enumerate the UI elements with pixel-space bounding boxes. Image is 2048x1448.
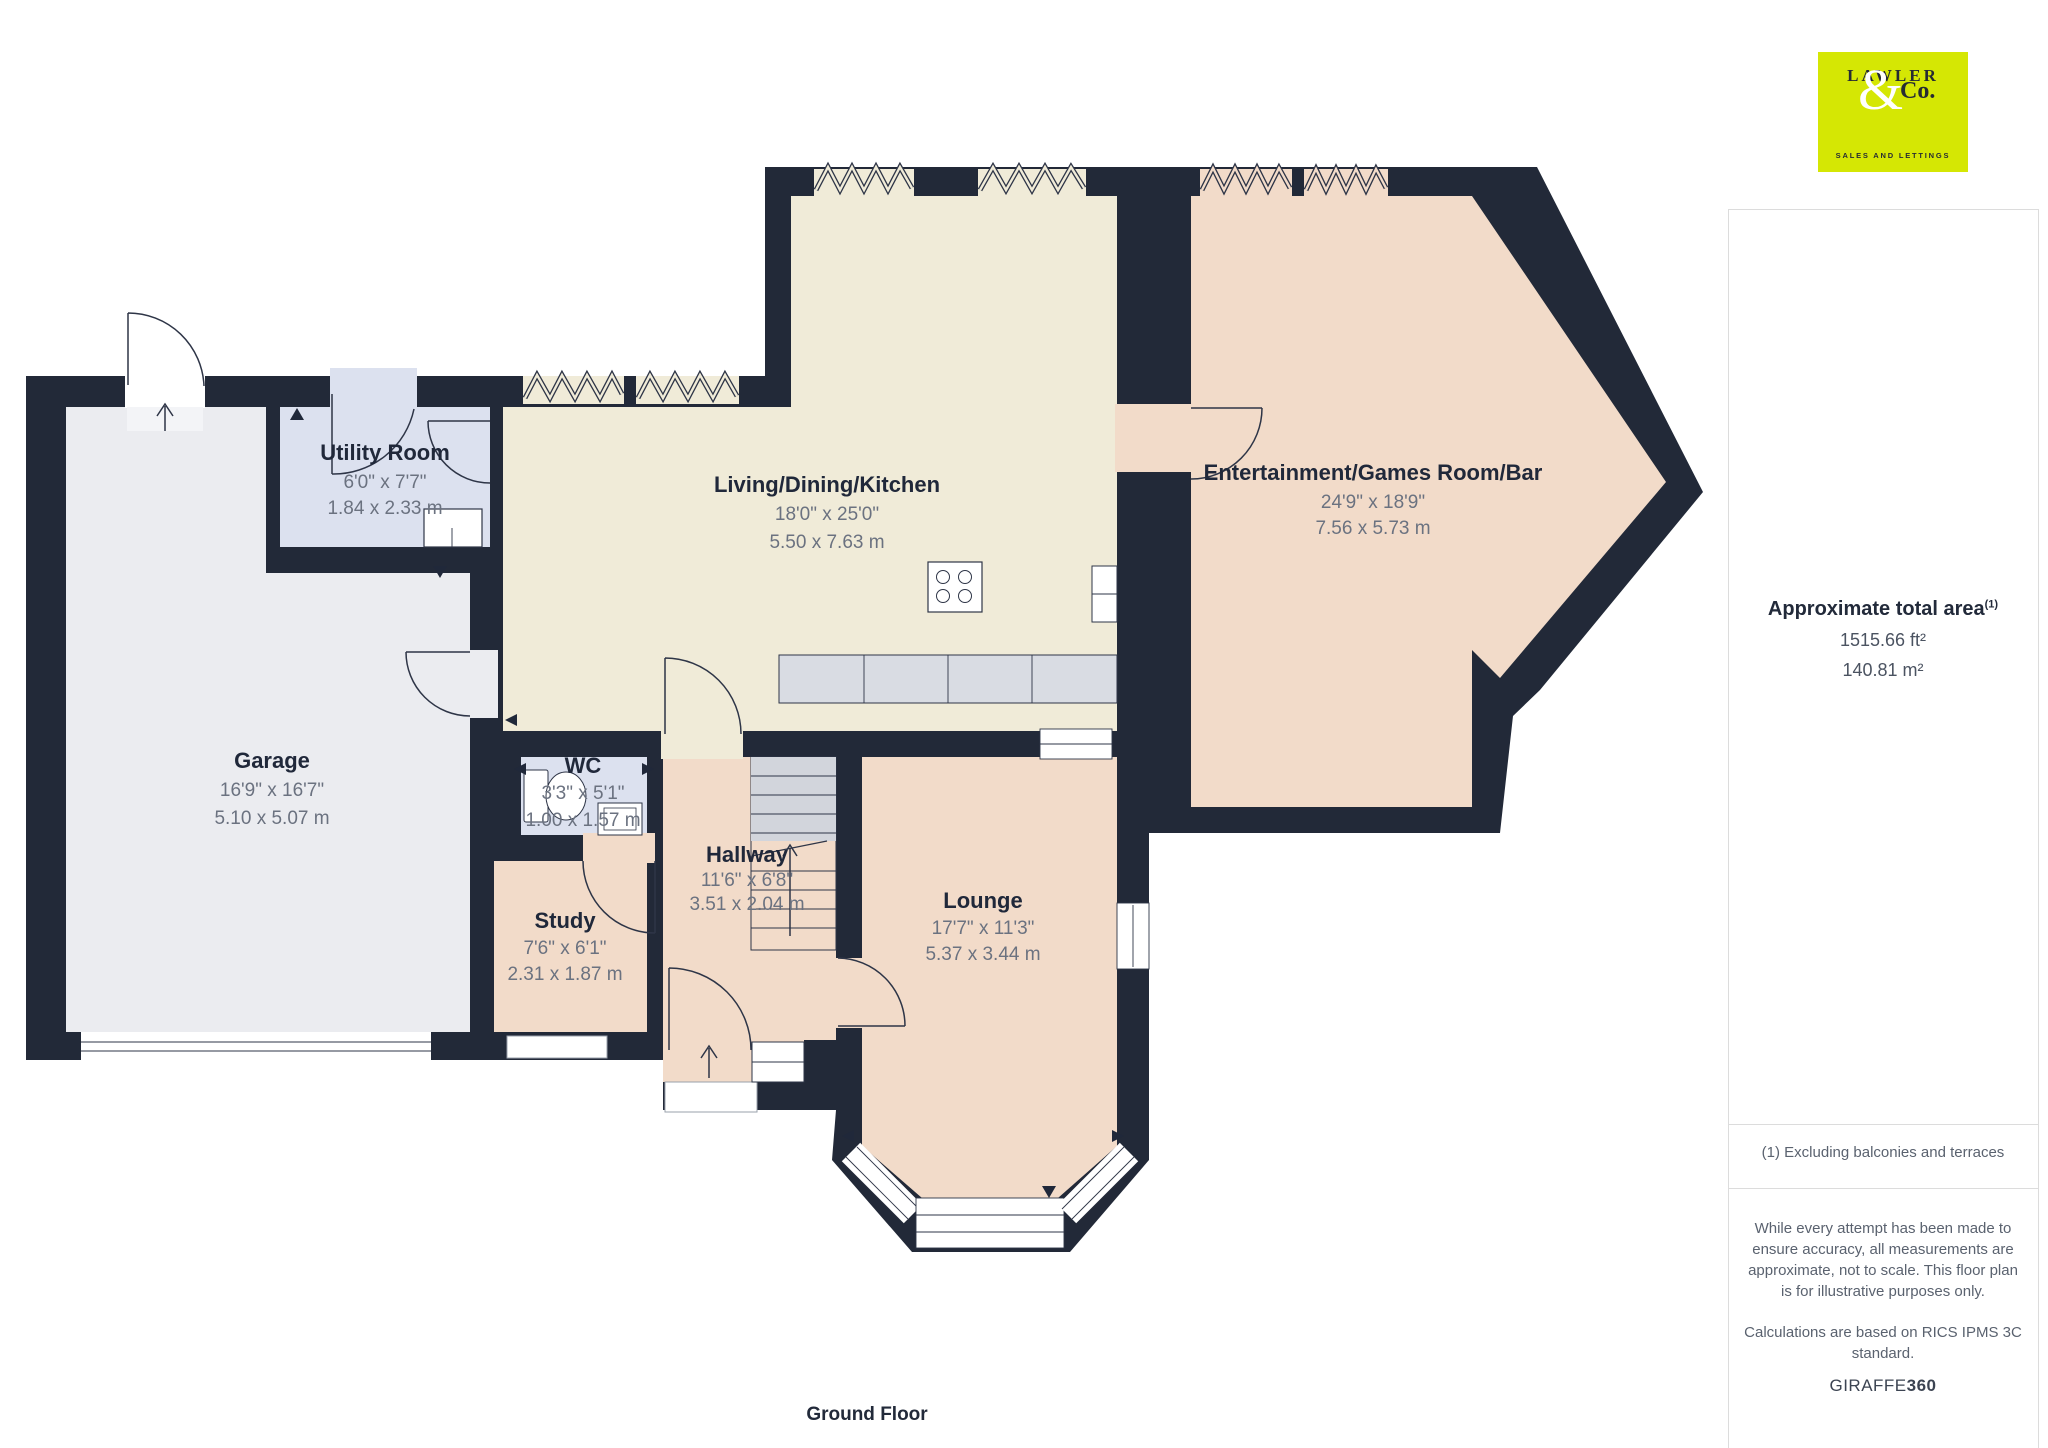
- logo-co: Co.: [1900, 78, 1935, 105]
- logo-ampersand: &: [1858, 56, 1903, 123]
- garage-door-opening: [468, 650, 498, 718]
- disclaimer-accuracy: While every attempt has been made to ens…: [1743, 1218, 2023, 1302]
- entertainment-dims-ft: 24'9" x 18'9": [1321, 492, 1425, 513]
- lounge-dims-m: 5.37 x 3.44 m: [925, 944, 1040, 965]
- sidebar-left-border: [1728, 209, 1729, 1448]
- wc-dims-ft: 3'3" x 5'1": [541, 783, 624, 804]
- sidebar-top-border: [1728, 209, 2038, 210]
- study-door-opening: [583, 833, 655, 863]
- room-lounge-fill: [862, 757, 1117, 1198]
- kitchen-hall-door-opening: [661, 729, 743, 759]
- area-title-text: Approximate total area: [1768, 598, 1985, 620]
- entertainment-dims-m: 7.56 x 5.73 m: [1315, 518, 1430, 539]
- wc-dims-m: 1.00 x 1.57 m: [525, 810, 640, 831]
- sidebar-right-border: [2038, 209, 2039, 1448]
- floor-label: Ground Floor: [767, 1404, 967, 1426]
- lounge-label: Lounge: [943, 888, 1022, 913]
- kitchen-appliance-icon: [1092, 566, 1117, 622]
- front-porch: [665, 1082, 757, 1112]
- kitchen-dims-m: 5.50 x 7.63 m: [769, 532, 884, 553]
- wall-patch-steps: [804, 1040, 838, 1084]
- hallway-label: Hallway: [706, 842, 789, 867]
- agency-logo: LAWLER & Co. SALES AND LETTINGS: [1818, 52, 1968, 172]
- area-footnote: (1) Excluding balconies and terraces: [1728, 1144, 2038, 1161]
- garage-main-door: [81, 1032, 431, 1060]
- utility-top-door-gap: [330, 368, 417, 409]
- utility-dims-ft: 6'0" x 7'7": [343, 472, 426, 493]
- study-porch-niche: [507, 1036, 607, 1058]
- garage-dims-ft: 16'9" x 16'7": [220, 780, 324, 801]
- area-value-m: 140.81 m²: [1728, 660, 2038, 681]
- disclaimer-standard: Calculations are based on RICS IPMS 3C s…: [1743, 1322, 2023, 1364]
- lounge-door-opening: [834, 958, 864, 1028]
- kitchen-dims-ft: 18'0" x 25'0": [775, 504, 879, 525]
- hallway-dims-m: 3.51 x 2.04 m: [689, 894, 804, 915]
- garage-dims-m: 5.10 x 5.07 m: [214, 808, 329, 829]
- wc-label: WC: [565, 753, 602, 778]
- kitchen-counter: [779, 655, 1117, 703]
- logo-tagline: SALES AND LETTINGS: [1818, 151, 1968, 160]
- study-dims-ft: 7'6" x 6'1": [523, 938, 606, 959]
- area-title: Approximate total area(1): [1728, 598, 2038, 621]
- lounge-dims-ft: 17'7" x 11'3": [932, 918, 1035, 939]
- sidebar-divider-1: [1728, 1124, 2038, 1125]
- utility-label: Utility Room: [320, 440, 450, 465]
- area-title-sup: (1): [1985, 598, 1998, 610]
- area-value-ft: 1515.66 ft²: [1728, 630, 2038, 651]
- entertainment-door-opening: [1115, 404, 1193, 472]
- brand-regular: GIRAFFE: [1829, 1376, 1906, 1395]
- study-label: Study: [534, 908, 596, 933]
- giraffe360-brand: GIRAFFE360: [1728, 1376, 2038, 1396]
- kitchen-label: Living/Dining/Kitchen: [714, 472, 940, 497]
- hob-icon: [928, 562, 982, 612]
- study-dims-m: 2.31 x 1.87 m: [507, 964, 622, 985]
- hallway-dims-ft: 11'6" x 6'8": [701, 870, 793, 891]
- utility-dims-m: 1.84 x 2.33 m: [327, 498, 442, 519]
- sidebar-divider-2: [1728, 1188, 2038, 1189]
- area-summary: Approximate total area(1) 1515.66 ft² 14…: [1728, 598, 2038, 681]
- floor-plan: Utility Room 6'0" x 7'7" 1.84 x 2.33 m L…: [0, 0, 2048, 1448]
- room-kitchen-fill: [503, 196, 1117, 731]
- brand-bold: 360: [1907, 1376, 1937, 1395]
- entertainment-label: Entertainment/Games Room/Bar: [1204, 460, 1543, 485]
- garage-label: Garage: [234, 748, 310, 773]
